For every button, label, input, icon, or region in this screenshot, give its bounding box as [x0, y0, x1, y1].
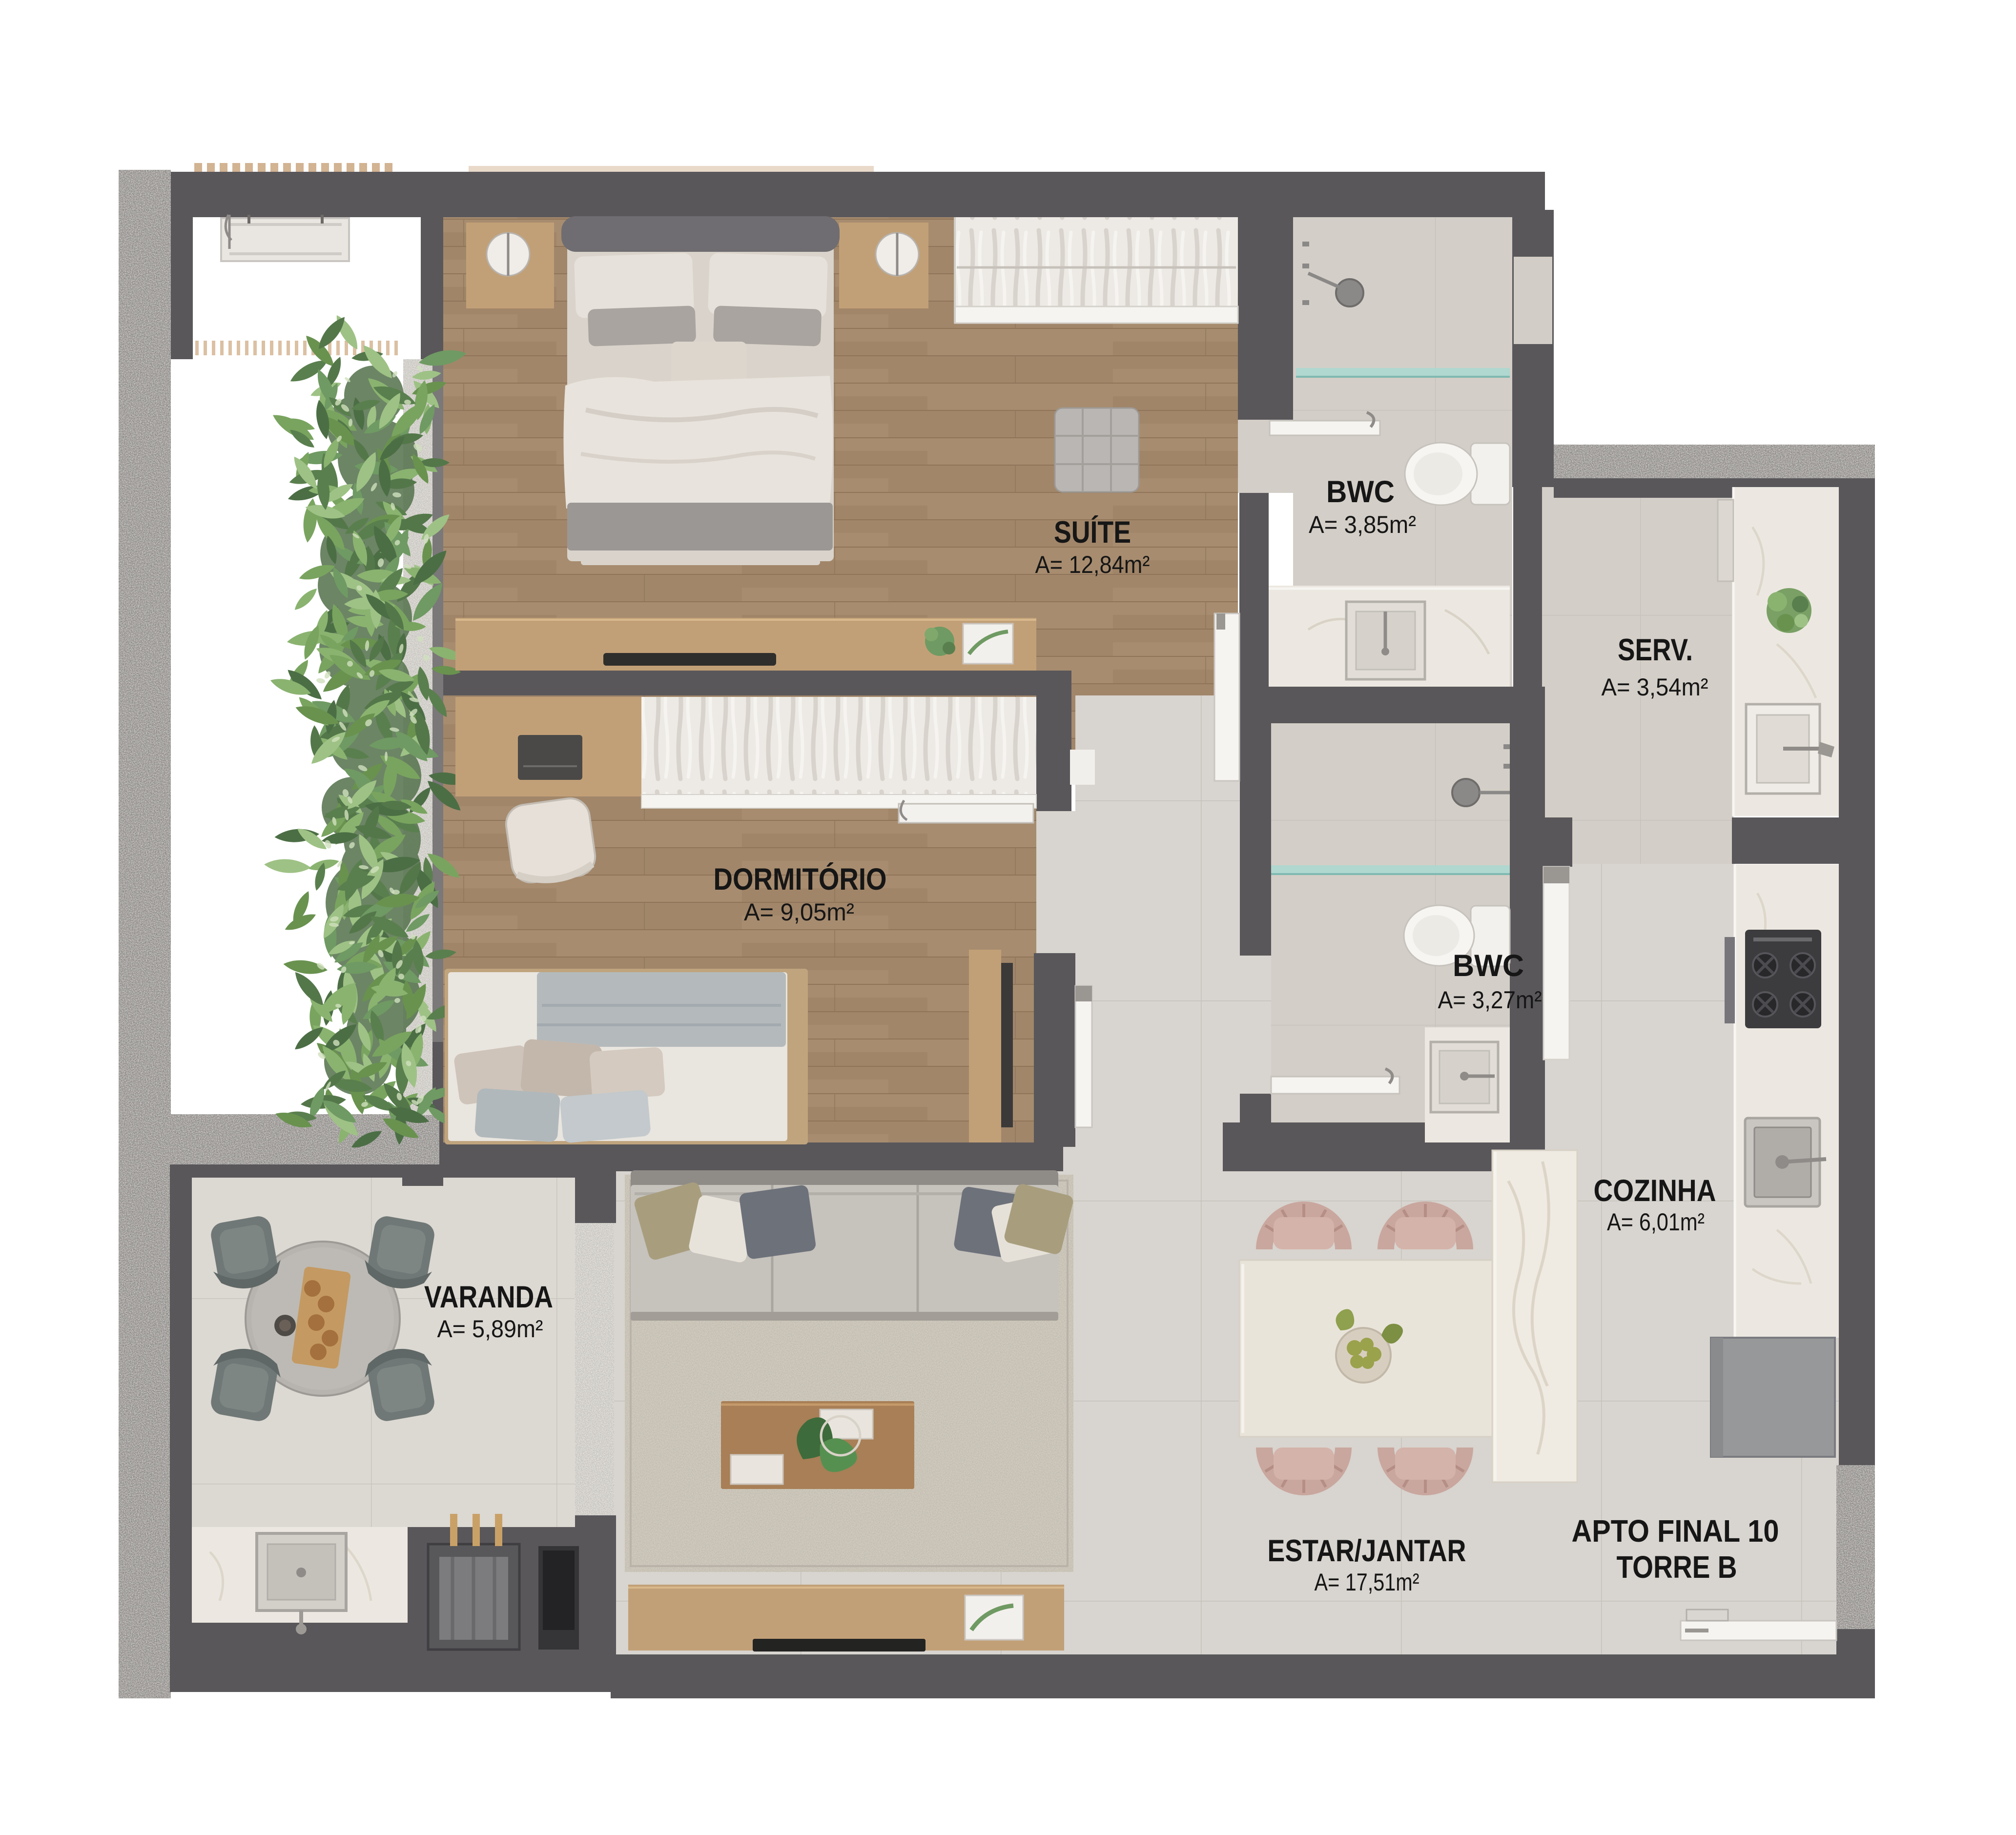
svg-text:DORMITÓRIO: DORMITÓRIO	[714, 862, 887, 897]
svg-text:BWC: BWC	[1326, 475, 1395, 509]
svg-text:A= 6,01m²: A= 6,01m²	[1607, 1208, 1705, 1236]
svg-text:A= 3,54m²: A= 3,54m²	[1602, 673, 1708, 701]
svg-text:BWC: BWC	[1453, 949, 1524, 983]
svg-text:A= 5,89m²: A= 5,89m²	[437, 1315, 543, 1343]
svg-text:A= 17,51m²: A= 17,51m²	[1315, 1569, 1419, 1596]
svg-text:TORRE B: TORRE B	[1617, 1550, 1737, 1585]
svg-text:APTO FINAL 10: APTO FINAL 10	[1572, 1513, 1779, 1549]
svg-text:SERV.: SERV.	[1618, 633, 1693, 667]
svg-text:COZINHA: COZINHA	[1594, 1174, 1716, 1208]
svg-text:A= 3,85m²: A= 3,85m²	[1309, 511, 1416, 538]
svg-text:A= 9,05m²: A= 9,05m²	[744, 898, 854, 926]
svg-text:VARANDA: VARANDA	[424, 1280, 553, 1314]
svg-text:SUÍTE: SUÍTE	[1054, 515, 1131, 550]
svg-text:ESTAR/JANTAR: ESTAR/JANTAR	[1268, 1534, 1466, 1568]
svg-text:A= 12,84m²: A= 12,84m²	[1035, 551, 1150, 578]
svg-text:A= 3,27m²: A= 3,27m²	[1438, 986, 1542, 1014]
